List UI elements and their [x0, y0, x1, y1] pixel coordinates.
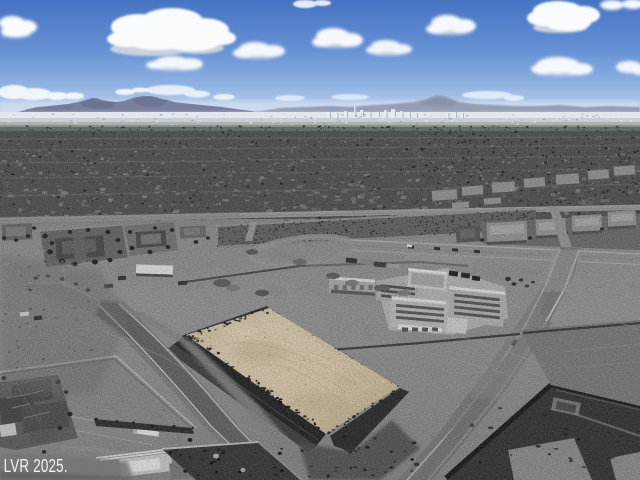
svg-text:LVR 2025.: LVR 2025. [4, 456, 68, 477]
